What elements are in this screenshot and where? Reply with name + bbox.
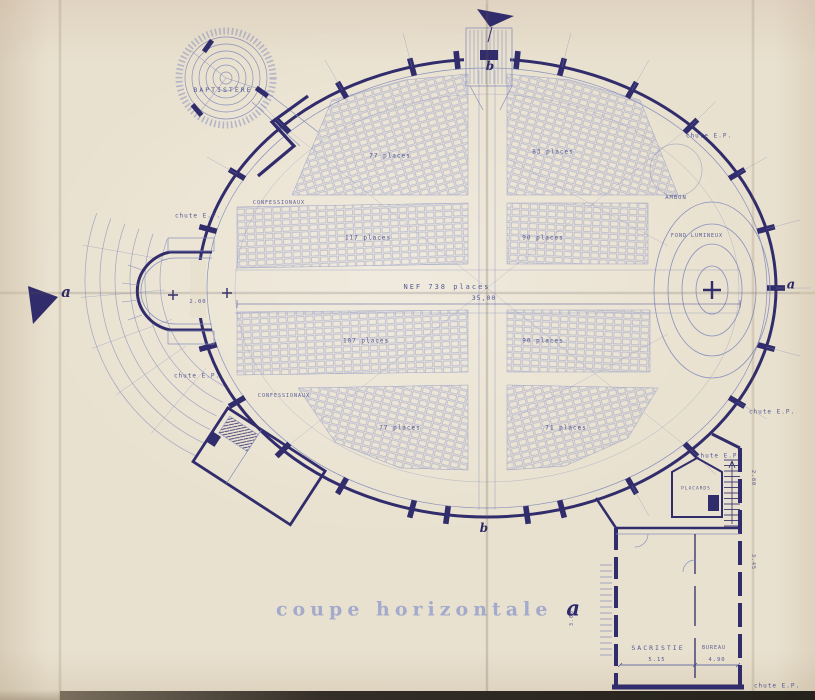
annex-dimension-line xyxy=(618,663,740,667)
label-confessionaux-1: CONFESSIONAUX xyxy=(253,200,305,206)
steps-spokes xyxy=(81,245,206,433)
baptistery xyxy=(179,31,318,176)
label-bureau: BUREAU xyxy=(702,645,726,651)
label-dim-515: 5.15 xyxy=(648,657,665,663)
north-arrow xyxy=(477,9,514,42)
label-ambon: AMBON xyxy=(665,195,687,201)
seating-blocks xyxy=(237,74,678,470)
label-dim-490: 4.90 xyxy=(708,657,725,663)
label-chute-ep-5: chute E.P. xyxy=(696,453,742,460)
photo-corner-shade xyxy=(0,690,64,700)
seat-label-mid-left: 117 places xyxy=(345,235,391,242)
drawing-title-marker: a xyxy=(566,596,580,621)
drawing-title: coupe horizontalea xyxy=(276,596,580,621)
label-placards: PLACARDS xyxy=(681,487,711,492)
chapel-gap xyxy=(190,260,206,318)
paper-crease-horizontal xyxy=(0,291,815,295)
label-chute-ep-4: chute E.P. xyxy=(749,409,795,416)
label-chute-ep-6: chute E.P. xyxy=(754,683,800,690)
label-dim-35: 35,00 xyxy=(472,294,497,302)
door-arcs xyxy=(635,534,695,572)
label-chute-ep-3: chute E.P. xyxy=(686,133,732,140)
seat-label-lower-left: 107 places xyxy=(343,338,389,345)
label-fond-lumineux: FOND LUMINEUX xyxy=(671,233,723,239)
baptistery-spokes xyxy=(190,50,268,112)
seat-block-upper-left xyxy=(292,74,468,195)
seat-label-lower-right: 90 places xyxy=(522,338,564,345)
label-chute-ep-2: chute E.P. xyxy=(174,373,220,380)
blueprint-paper: BAPTISTÈRE chute E.P. chute E.P. chute E… xyxy=(0,0,815,700)
paper-crease-right xyxy=(751,0,755,700)
altar-cross xyxy=(703,281,721,299)
seat-label-upper-right: 83 places xyxy=(532,149,574,156)
label-nef: NEF 738 places xyxy=(403,283,490,291)
seat-block-mid-right xyxy=(507,203,648,264)
seat-label-mid-right: 90 places xyxy=(522,235,564,242)
label-sacristie: SACRISTIE xyxy=(631,644,684,652)
seat-label-upper-left: 77 places xyxy=(369,153,411,160)
paper-crease-center xyxy=(485,0,489,700)
label-dim-2: 2.00 xyxy=(189,299,206,305)
seat-label-bottom-right: 71 places xyxy=(545,425,587,432)
photo-bottom-edge xyxy=(60,691,815,700)
exterior-steps-arcs xyxy=(81,213,230,456)
annex-exterior-steps xyxy=(600,565,612,655)
label-chute-ep-1: chute E.P. xyxy=(175,213,221,220)
drawing-title-text: coupe horizontale xyxy=(276,599,552,621)
seat-block-upper-right xyxy=(507,74,678,195)
paper-crease-left xyxy=(58,0,62,700)
label-baptistere: BAPTISTÈRE xyxy=(193,86,252,94)
seat-label-bottom-left: 77 places xyxy=(379,425,421,432)
label-confessionaux-2: CONFESSIONAUX xyxy=(258,393,310,399)
